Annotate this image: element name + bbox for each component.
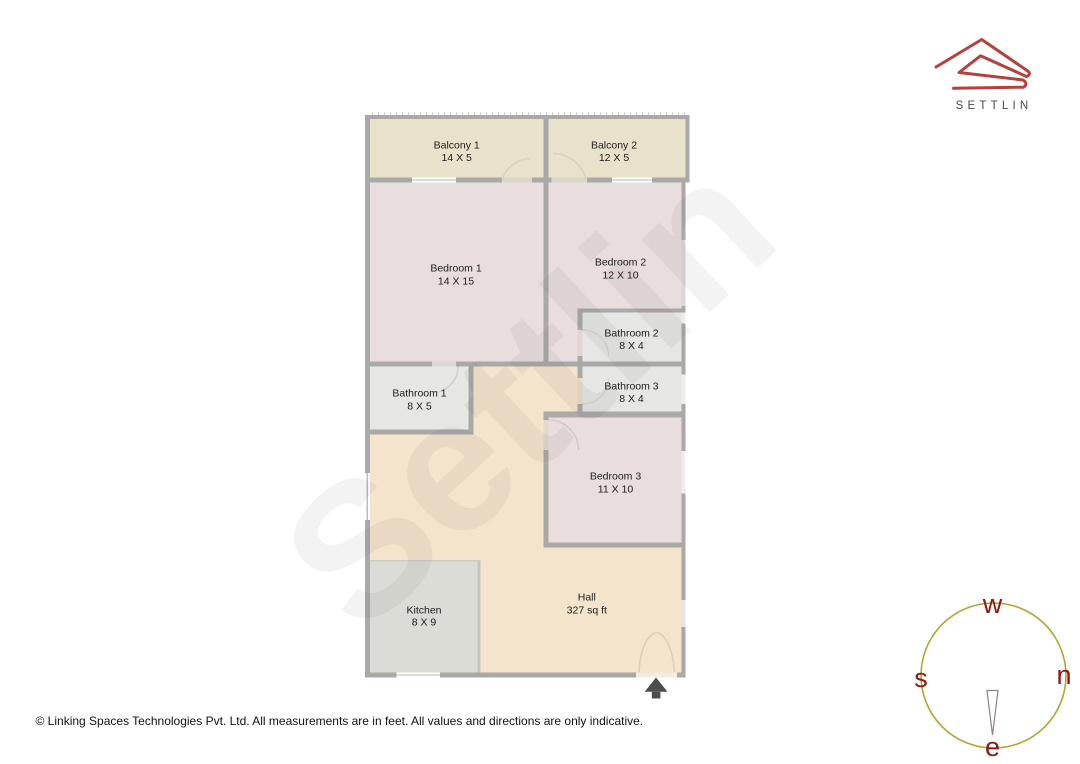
svg-text:Kitchen: Kitchen: [406, 605, 441, 617]
svg-text:Bedroom 1: Bedroom 1: [430, 263, 482, 275]
svg-text:14 X 15: 14 X 15: [438, 276, 474, 288]
svg-text:11 X 10: 11 X 10: [598, 484, 634, 496]
svg-text:14 X 5: 14 X 5: [442, 152, 473, 164]
svg-text:s: s: [914, 663, 928, 693]
svg-text:Bedroom 3: Bedroom 3: [590, 471, 642, 483]
svg-text:Bedroom 2: Bedroom 2: [595, 257, 647, 269]
svg-text:8 X 5: 8 X 5: [407, 401, 432, 413]
svg-text:8 X 4: 8 X 4: [619, 393, 644, 405]
svg-text:8 X 4: 8 X 4: [619, 340, 644, 352]
svg-text:Balcony 2: Balcony 2: [591, 140, 637, 152]
svg-text:© Linking Spaces Technologies: © Linking Spaces Technologies Pvt. Ltd. …: [36, 714, 644, 728]
svg-text:12 X 10: 12 X 10: [602, 270, 638, 282]
svg-text:e: e: [985, 732, 1000, 762]
svg-text:Bathroom 3: Bathroom 3: [604, 381, 658, 393]
svg-text:Bathroom 1: Bathroom 1: [392, 388, 446, 400]
svg-text:n: n: [1056, 660, 1071, 690]
svg-text:Hall: Hall: [578, 592, 596, 604]
svg-text:327 sq ft: 327 sq ft: [567, 605, 607, 617]
svg-text:Bathroom 2: Bathroom 2: [604, 328, 658, 340]
svg-text:w: w: [982, 589, 1003, 619]
svg-text:SETTLIN: SETTLIN: [956, 100, 1033, 112]
svg-text:12 X 5: 12 X 5: [599, 152, 630, 164]
svg-text:Balcony 1: Balcony 1: [434, 140, 480, 152]
svg-text:8 X 9: 8 X 9: [412, 617, 437, 629]
